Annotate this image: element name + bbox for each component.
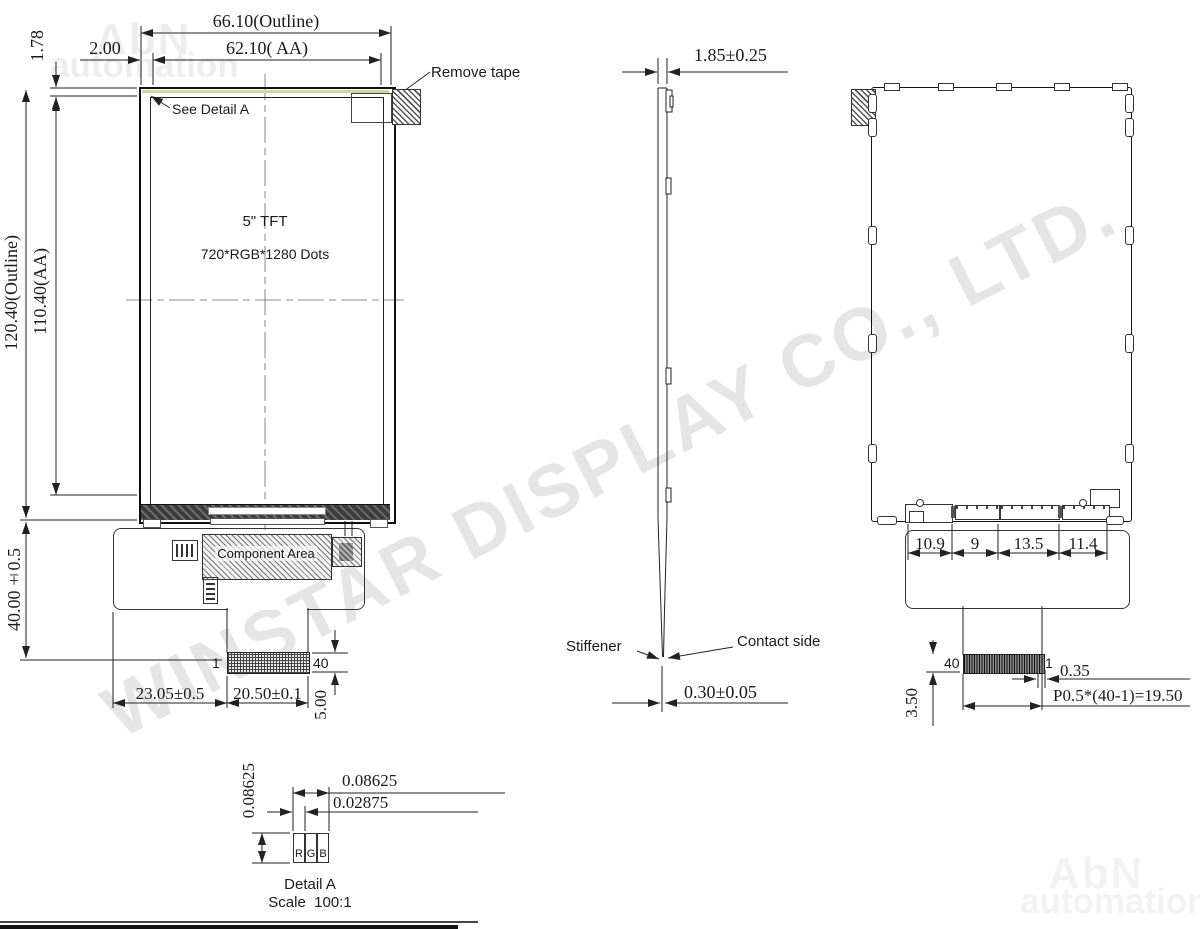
detail-a-scale: Scale 100:1 <box>250 895 370 910</box>
back-view-side-tab <box>868 334 877 353</box>
back-view-side-tab <box>868 118 877 137</box>
back-view-side-tab <box>1125 444 1134 463</box>
leader-stiffener <box>637 651 659 659</box>
back-bottom-junction <box>951 506 955 518</box>
back-view-outline <box>871 87 1132 522</box>
dim-fpc-length: 40.00±0.5 <box>5 548 23 631</box>
back-view-side-tab <box>1125 334 1134 353</box>
back-bottom-bar <box>1000 505 1060 520</box>
back-view-side-tab <box>868 444 877 463</box>
subpixel-g-box: G <box>305 833 317 863</box>
side-profile-fpc <box>658 518 667 657</box>
front-pin-first: 1 <box>212 656 220 670</box>
back-view-top-tab <box>884 83 900 91</box>
component-area-label: Component Area <box>202 547 330 560</box>
page-edge-line <box>0 921 478 923</box>
back-bottom-hole <box>1079 499 1087 507</box>
remove-tape-label: Remove tape <box>431 65 520 80</box>
side-profile-outline <box>658 88 667 518</box>
dim-seg2: 9 <box>952 535 998 552</box>
detail-a-title: Detail A <box>255 877 365 892</box>
front-view-active-area <box>150 97 384 510</box>
remove-tape-patch <box>392 89 421 125</box>
dim-connector-offset: 23.05±0.5 <box>113 685 227 702</box>
front-view-corner-rect <box>351 93 392 123</box>
panel-size-label: 5" TFT <box>215 214 315 229</box>
back-view-side-tab <box>1125 94 1134 113</box>
back-view-top-tab <box>938 83 954 91</box>
dim-seg1: 10.9 <box>908 535 952 552</box>
front-fpc-tail-gap <box>228 606 307 610</box>
leader-contact-side <box>668 647 733 658</box>
back-pin-last: 40 <box>944 656 960 670</box>
subpixel-b-box: B <box>317 833 329 863</box>
subpixel-r-box: R <box>293 833 305 863</box>
back-pin-first: 1 <box>1045 656 1053 670</box>
subpixel-g-label: G <box>307 848 316 860</box>
dim-top-border: 1.78 <box>28 30 46 62</box>
side-bump <box>666 488 671 502</box>
back-view-side-tab <box>1125 226 1134 245</box>
engineering-drawing-canvas: AbN automation AbN automation WINSTAR DI… <box>0 0 1200 929</box>
dim-aa-width: 62.10( AA) <box>152 39 382 57</box>
page-edge-bar <box>0 925 458 929</box>
back-view-side-tab <box>868 94 877 113</box>
back-view-top-tab <box>996 83 1012 91</box>
side-bump <box>670 96 673 107</box>
back-fpc-tail-gap <box>964 604 1041 608</box>
front-view-bottom-tab <box>370 519 388 528</box>
panel-resolution-label: 720*RGB*1280 Dots <box>180 247 350 261</box>
dim-subpixel-width: 0.02875 <box>333 794 388 811</box>
front-connector-pins <box>227 652 310 674</box>
dim-outline-width: 66.10(Outline) <box>140 12 392 30</box>
front-fpc-component-header <box>172 540 198 561</box>
dim-seg3: 13.5 <box>998 535 1059 552</box>
dim-connector-width: 20.50±0.1 <box>227 685 308 702</box>
stiffener-label: Stiffener <box>566 639 622 654</box>
back-bottom-slot <box>1106 516 1124 525</box>
back-bottom-slot <box>877 516 897 525</box>
front-view-bottom-tab <box>210 518 325 525</box>
back-bottom-junction <box>1058 506 1062 518</box>
back-view-top-tab <box>1054 83 1070 91</box>
back-bottom-bar <box>955 505 1000 520</box>
back-view-side-tab <box>868 226 877 245</box>
dim-outline-height: 120.40(Outline) <box>2 235 20 350</box>
front-pin-last: 40 <box>313 656 329 670</box>
dim-pin-width: 0.35 <box>1060 662 1090 679</box>
dim-pixel-width: 0.08625 <box>342 772 397 789</box>
contact-side-label: Contact side <box>737 634 820 649</box>
back-bottom-block-notch <box>909 511 924 523</box>
back-bottom-bar <box>1062 505 1110 520</box>
back-bottom-hole <box>916 499 924 507</box>
front-view-bottom-tab <box>143 519 161 528</box>
back-view-top-tab <box>1112 83 1128 91</box>
dim-pixel-height: 0.08625 <box>240 763 257 818</box>
back-connector-pins <box>963 654 1045 674</box>
see-detail-a-label: See Detail A <box>172 102 249 116</box>
component-area-text: Component Area <box>215 546 317 561</box>
dim-connector-length: 5.00 <box>312 690 329 720</box>
dim-fpc-thickness: 0.30±0.05 <box>684 683 757 701</box>
dim-aa-height: 110.40(AA) <box>31 248 49 335</box>
subpixel-r-label: R <box>295 848 303 860</box>
dim-left-border: 2.00 <box>70 39 140 57</box>
side-bump <box>666 368 671 384</box>
back-view-side-tab <box>1125 118 1134 137</box>
side-bump <box>666 178 671 194</box>
dim-pitch-formula: P0.5*(40-1)=19.50 <box>1053 687 1183 704</box>
dim-seg4: 11.4 <box>1059 535 1107 552</box>
front-fpc-component-square-inner <box>339 543 353 561</box>
dim-thickness: 1.85±0.25 <box>694 46 767 64</box>
front-view-bottom-bar-slot <box>208 507 326 515</box>
subpixel-b-label: B <box>319 848 326 860</box>
front-fpc-component-vertical <box>203 577 218 604</box>
dim-stiffener: 3.50 <box>903 688 920 718</box>
